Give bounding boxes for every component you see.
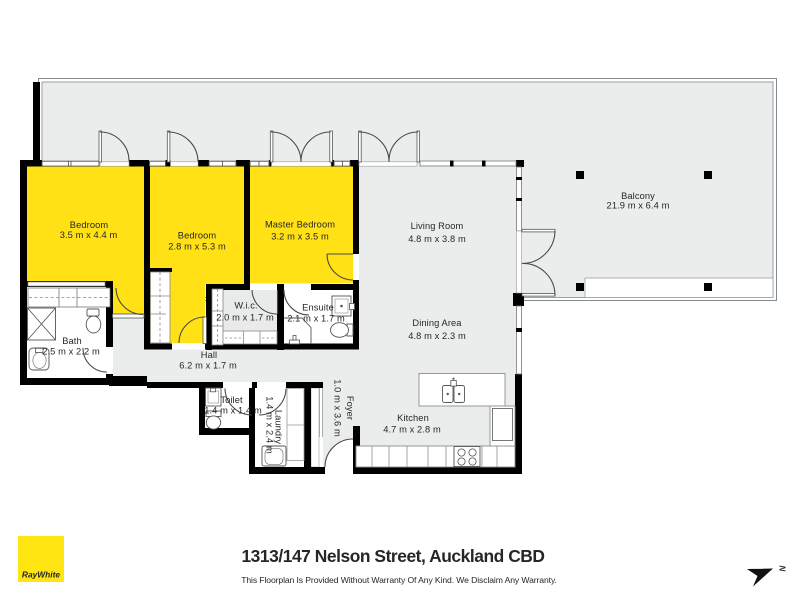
svg-text:4.7 m x 2.8 m: 4.7 m x 2.8 m	[383, 425, 441, 435]
svg-text:2.8 m x 5.3 m: 2.8 m x 5.3 m	[168, 242, 226, 252]
svg-text:1.4 m x 2.4 m: 1.4 m x 2.4 m	[265, 396, 275, 454]
svg-text:21.9 m x 6.4 m: 21.9 m x 6.4 m	[607, 201, 670, 211]
svg-text:3.2 m x 3.5 m: 3.2 m x 3.5 m	[271, 232, 329, 242]
svg-text:Living Room: Living Room	[411, 221, 464, 231]
svg-text:W.i.c.: W.i.c.	[234, 301, 257, 311]
svg-text:This Floorplan Is Provided Wit: This Floorplan Is Provided Without Warra…	[241, 575, 557, 585]
svg-text:Hall: Hall	[201, 350, 217, 360]
svg-text:Dining Area: Dining Area	[412, 318, 462, 328]
svg-text:2.0 m x 1.7 m: 2.0 m x 1.7 m	[216, 313, 274, 323]
svg-text:Bedroom: Bedroom	[70, 220, 109, 230]
svg-text:6.2 m x 1.7 m: 6.2 m x 1.7 m	[179, 361, 237, 371]
svg-text:1313/147 Nelson Street, Auckla: 1313/147 Nelson Street, Auckland CBD	[241, 546, 544, 566]
svg-text:3.5 m x 4.4 m: 3.5 m x 4.4 m	[60, 230, 118, 240]
svg-text:RayWhite: RayWhite	[22, 570, 61, 580]
svg-text:4.8 m x 2.3 m: 4.8 m x 2.3 m	[408, 331, 466, 341]
svg-text:Bedroom: Bedroom	[178, 231, 217, 241]
svg-text:2.5 m x 2.2 m: 2.5 m x 2.2 m	[42, 347, 100, 357]
svg-text:1.4 m x 1.4 m: 1.4 m x 1.4 m	[204, 406, 262, 416]
svg-text:1.0 m x 3.6 m: 1.0 m x 3.6 m	[333, 379, 343, 437]
svg-text:2.1 m x 1.7 m: 2.1 m x 1.7 m	[287, 314, 345, 324]
svg-text:4.8 m x 3.8 m: 4.8 m x 3.8 m	[408, 234, 466, 244]
svg-text:Toilet: Toilet	[220, 395, 243, 405]
svg-text:Kitchen: Kitchen	[397, 413, 429, 423]
svg-text:Foyer: Foyer	[345, 396, 355, 420]
svg-text:N: N	[778, 566, 787, 572]
svg-text:Balcony: Balcony	[621, 191, 655, 201]
svg-text:Bath: Bath	[62, 336, 82, 346]
svg-text:Master Bedroom: Master Bedroom	[265, 220, 335, 230]
svg-text:Ensuite: Ensuite	[302, 303, 334, 313]
